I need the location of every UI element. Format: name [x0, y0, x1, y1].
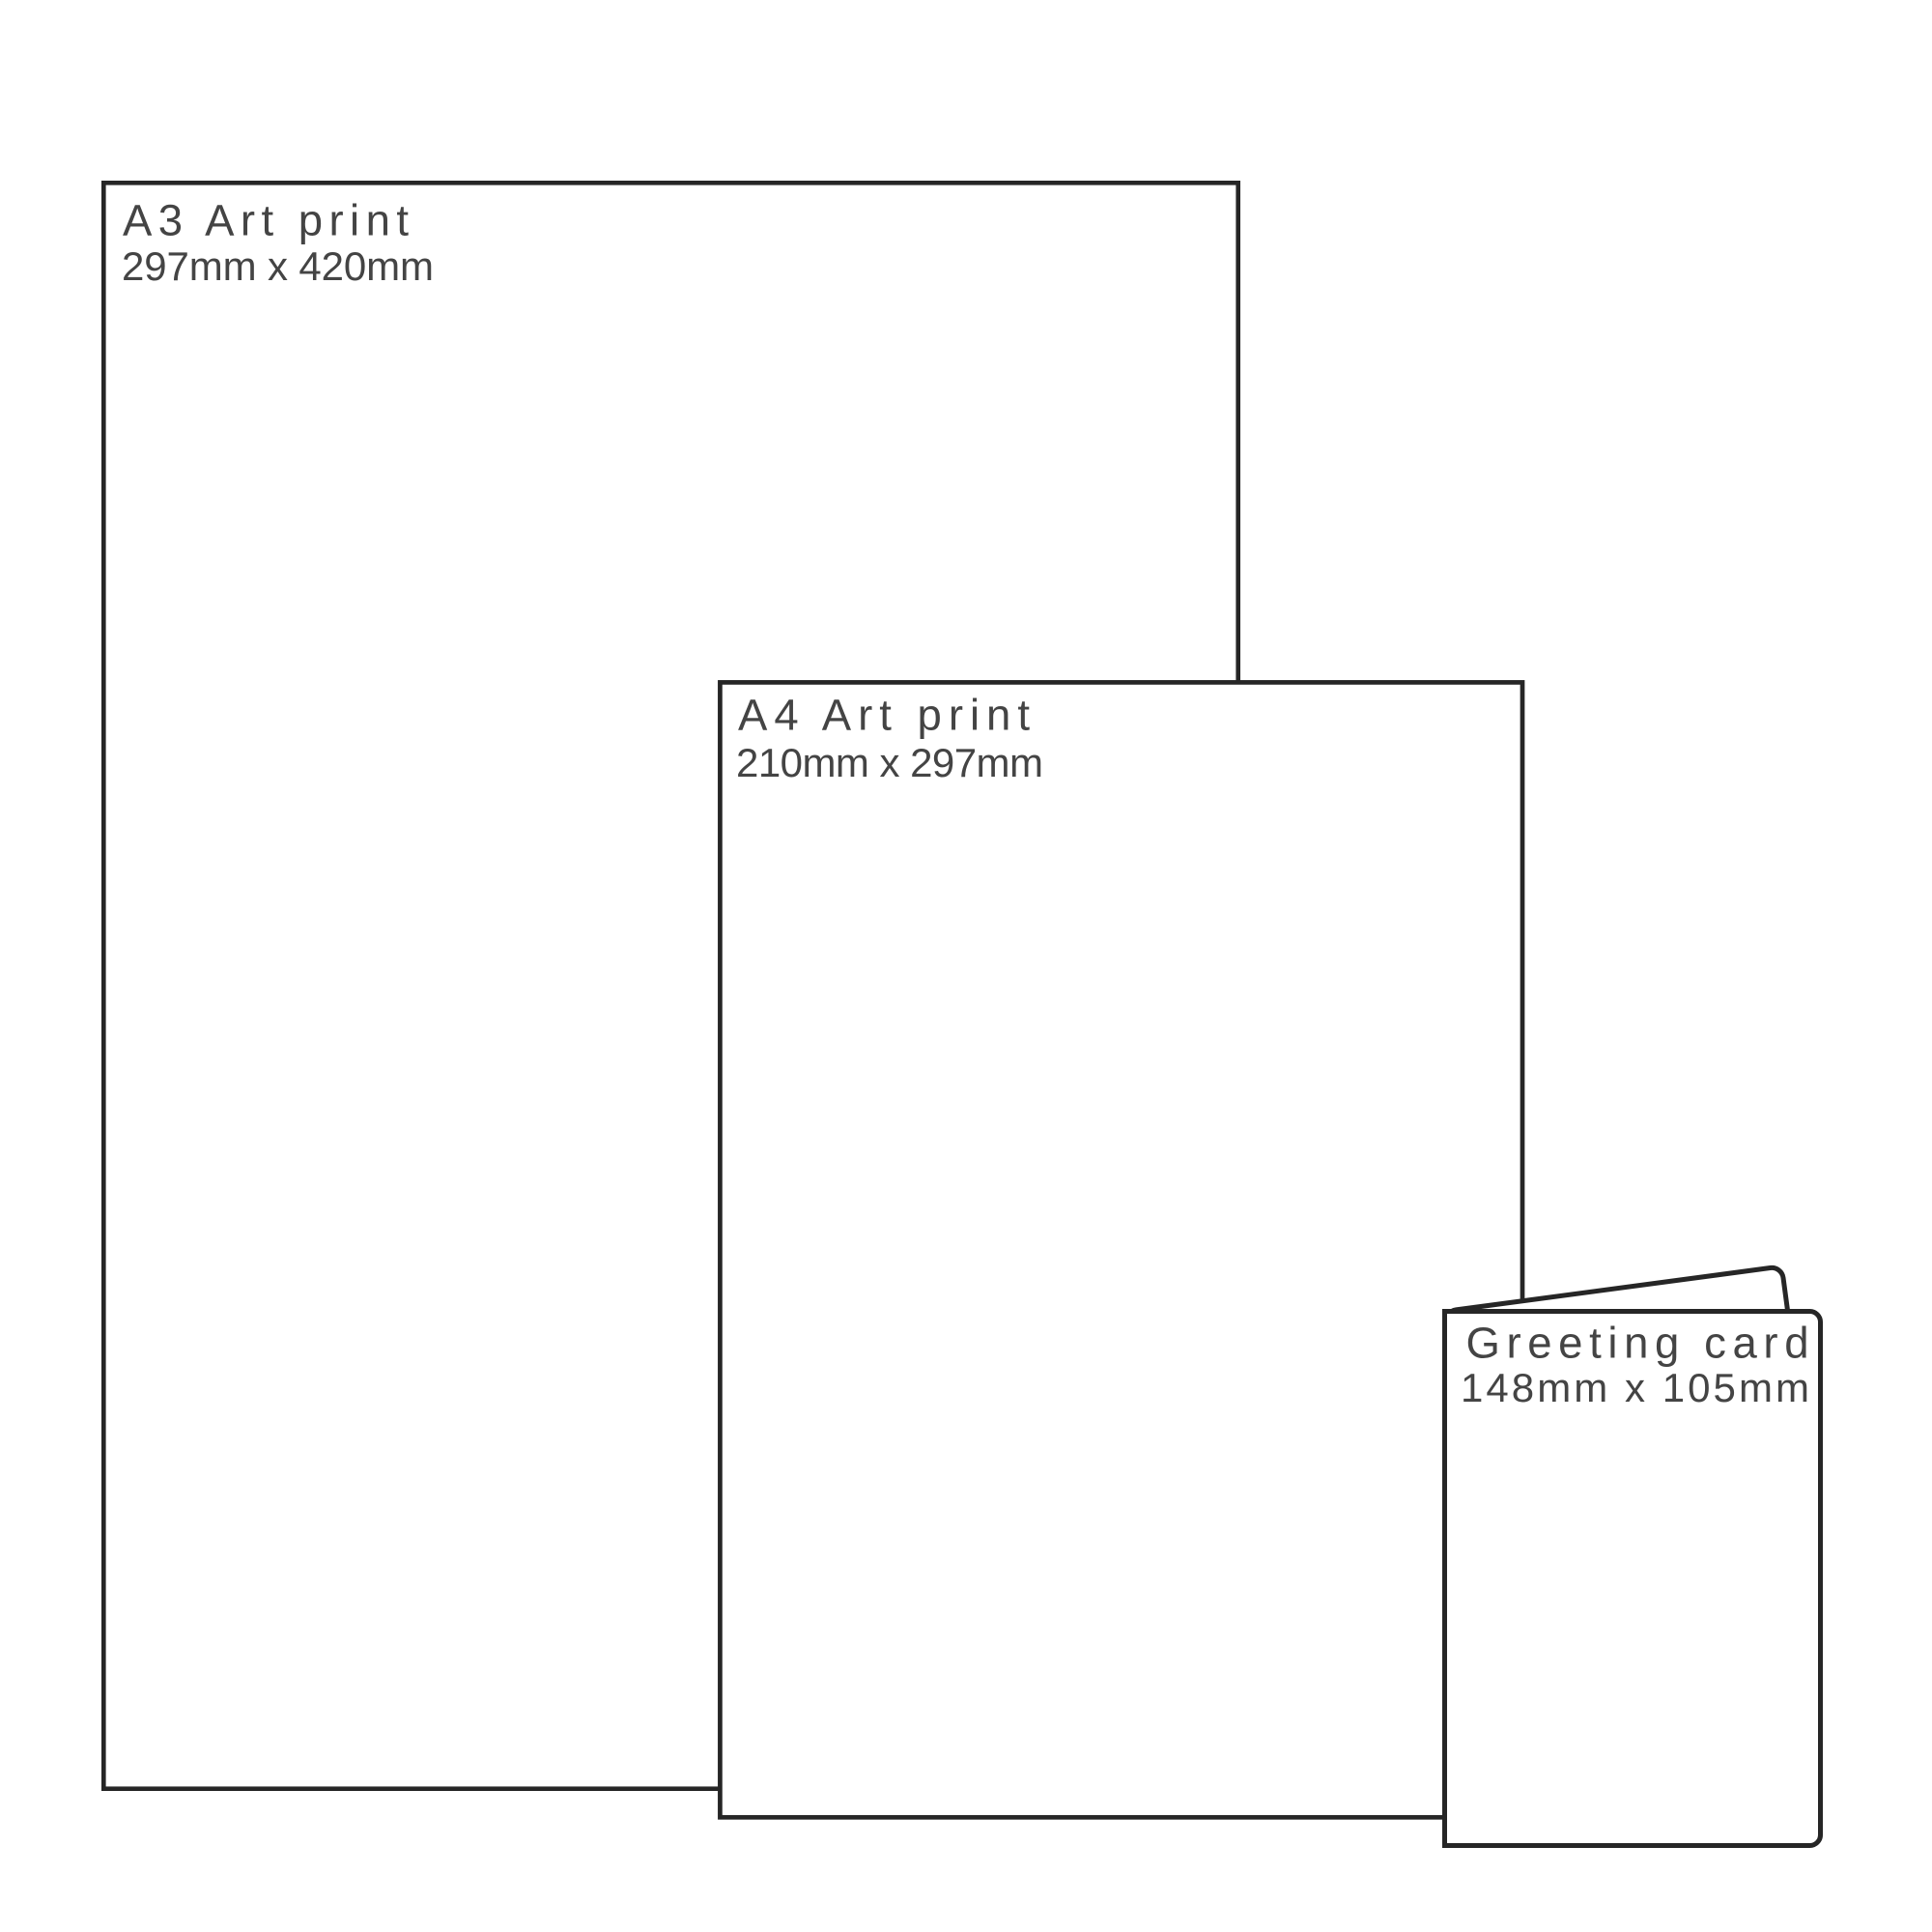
svg-text:148mm x 105mm: 148mm x 105mm: [1461, 1365, 1809, 1410]
svg-text:210mm x 297mm: 210mm x 297mm: [736, 740, 1043, 785]
svg-text:A4 Art print: A4 Art print: [738, 691, 1030, 740]
svg-text:A3 Art print: A3 Art print: [123, 196, 409, 245]
svg-text:297mm x 420mm: 297mm x 420mm: [122, 243, 434, 289]
